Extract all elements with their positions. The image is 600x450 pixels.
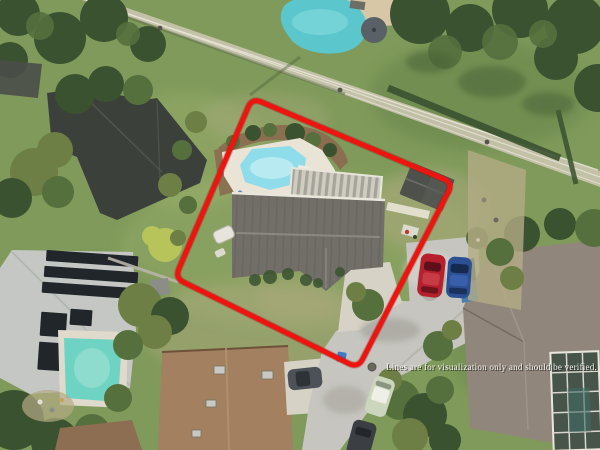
skylight — [206, 400, 216, 407]
disclaimer-text: Lines are for visualization only and sho… — [386, 362, 597, 373]
aerial-scene: Lines are for visualization only and sho… — [0, 0, 600, 450]
skylight — [214, 366, 225, 374]
aerial-photo: Lines are for visualization only and sho… — [0, 0, 600, 450]
car-gray — [287, 366, 323, 390]
car-blue — [446, 256, 473, 299]
yard-clutter — [22, 390, 74, 422]
top-left-corner-structure — [0, 60, 42, 98]
skylight — [192, 430, 201, 437]
skylight — [262, 371, 273, 379]
enclosed-pool-water — [568, 388, 592, 433]
manhole-cover — [368, 363, 376, 371]
